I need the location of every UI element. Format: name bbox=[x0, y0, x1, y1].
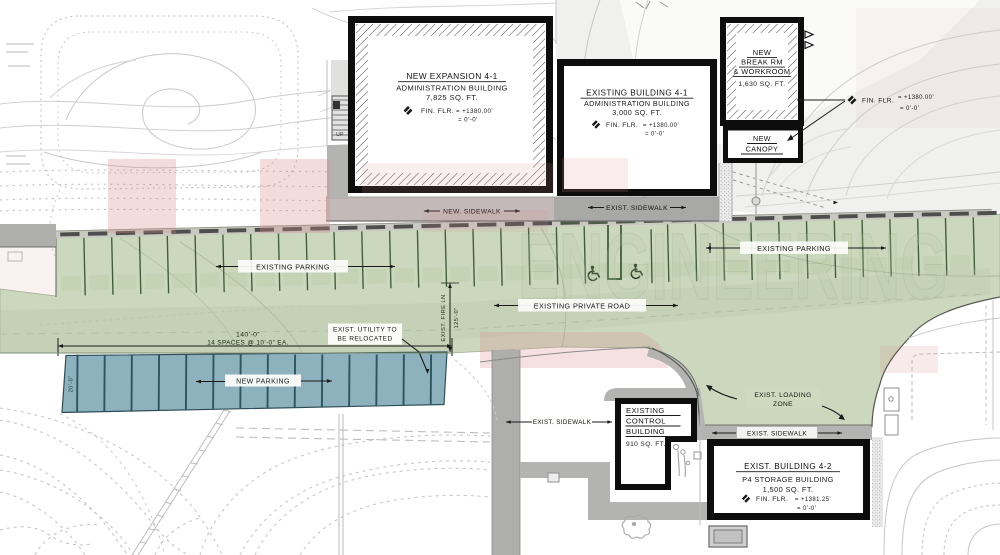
svg-text:P4 STORAGE BUILDING: P4 STORAGE BUILDING bbox=[742, 475, 834, 484]
svg-text:140’-0”: 140’-0” bbox=[236, 332, 260, 339]
svg-text:3,000 SQ. FT.: 3,000 SQ. FT. bbox=[612, 108, 662, 117]
svg-text:EXIST. SIDEWALK: EXIST. SIDEWALK bbox=[606, 205, 668, 212]
svg-text:FIN. FLR.: FIN. FLR. bbox=[606, 122, 638, 129]
svg-text:EXISTING BUILDING 4-1: EXISTING BUILDING 4-1 bbox=[586, 89, 688, 98]
svg-text:= 0’-0’: = 0’-0’ bbox=[458, 117, 478, 124]
svg-text:= +1380.00’: = +1380.00’ bbox=[898, 95, 934, 101]
svg-text:1,630 SQ. FT.: 1,630 SQ. FT. bbox=[738, 81, 785, 88]
svg-text:NEW: NEW bbox=[753, 48, 771, 57]
svg-text:EXISTING PARKING: EXISTING PARKING bbox=[757, 244, 831, 253]
svg-text:= +1380.00’: = +1380.00’ bbox=[456, 108, 493, 115]
svg-text:EXISTING: EXISTING bbox=[626, 406, 665, 415]
svg-text:UP: UP bbox=[336, 132, 344, 138]
svg-text:EXISTING PARKING: EXISTING PARKING bbox=[256, 262, 330, 271]
svg-text:= 0’-0’: = 0’-0’ bbox=[797, 506, 816, 512]
svg-text:BUILDING: BUILDING bbox=[626, 427, 665, 436]
svg-text:EXIST. SIDEWALK: EXIST. SIDEWALK bbox=[533, 419, 592, 426]
svg-text:NEW EXPANSION 4-1: NEW EXPANSION 4-1 bbox=[406, 71, 497, 81]
svg-text:& WORKROOM: & WORKROOM bbox=[734, 67, 791, 76]
svg-text:CANOPY: CANOPY bbox=[746, 145, 779, 154]
svg-text:EXIST. BUILDING 4-2: EXIST. BUILDING 4-2 bbox=[744, 462, 832, 471]
svg-text:NEW PARKING: NEW PARKING bbox=[236, 378, 290, 385]
svg-text:14 SPACES @ 10’-0” EA.: 14 SPACES @ 10’-0” EA. bbox=[207, 340, 289, 347]
svg-text:CONTROL: CONTROL bbox=[626, 417, 666, 426]
svg-text:FIN. FLR.: FIN. FLR. bbox=[862, 98, 894, 105]
svg-text:EXIST. UTILITY TO: EXIST. UTILITY TO bbox=[333, 327, 397, 334]
svg-text:EXIST. LOADING: EXIST. LOADING bbox=[754, 392, 811, 399]
svg-text:BREAK RM: BREAK RM bbox=[741, 58, 783, 67]
svg-text:NEW: NEW bbox=[753, 134, 771, 143]
svg-text:BE RELOCATED: BE RELOCATED bbox=[337, 336, 392, 343]
svg-text:125’-0”: 125’-0” bbox=[454, 308, 460, 329]
svg-text:EXIST. SIDEWALK: EXIST. SIDEWALK bbox=[747, 431, 807, 438]
svg-text:1,500 SQ. FT.: 1,500 SQ. FT. bbox=[763, 485, 814, 494]
svg-text:ADMINISTRATION BUILDING: ADMINISTRATION BUILDING bbox=[584, 99, 690, 108]
svg-text:FIN. FLR.: FIN. FLR. bbox=[421, 108, 454, 115]
svg-text:= 0’-0’: = 0’-0’ bbox=[645, 132, 664, 138]
svg-text:ZONE: ZONE bbox=[773, 401, 793, 408]
svg-text:= 0’-0’: = 0’-0’ bbox=[900, 106, 919, 112]
svg-text:= +1380.00’: = +1380.00’ bbox=[643, 123, 679, 129]
svg-text:910 SQ. FT.: 910 SQ. FT. bbox=[626, 441, 666, 448]
svg-text:= +1381.25’: = +1381.25’ bbox=[795, 497, 831, 503]
svg-text:EXISTING PRIVATE ROAD: EXISTING PRIVATE ROAD bbox=[534, 301, 630, 310]
svg-text:7,825 SQ. FT.: 7,825 SQ. FT. bbox=[426, 93, 478, 102]
svg-text:EXIST. FIRE LN: EXIST. FIRE LN bbox=[441, 294, 447, 341]
svg-text:ADMINISTRATION BUILDING: ADMINISTRATION BUILDING bbox=[396, 84, 508, 93]
svg-text:FIN. FLR.: FIN. FLR. bbox=[756, 496, 788, 503]
svg-text:20’-0”: 20’-0” bbox=[69, 376, 75, 393]
